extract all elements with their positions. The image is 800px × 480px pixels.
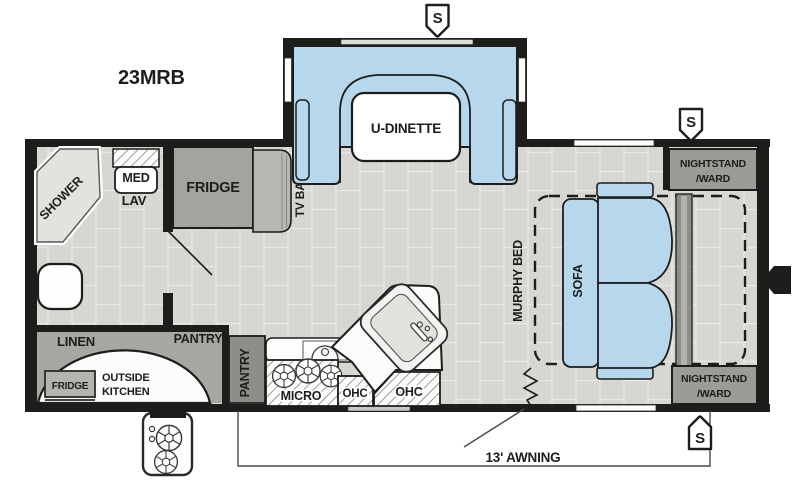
window-slideout-left: [285, 58, 292, 102]
outside-kitchen-label-1: OUTSIDE: [102, 372, 150, 384]
murphy-bed-platform-detail: [681, 196, 687, 370]
micro-label: MICRO: [281, 389, 322, 403]
speaker-badge-top: S: [427, 5, 449, 37]
window-slideout-right: [519, 58, 526, 102]
window-top: [574, 140, 654, 146]
nightstand-top-line2: /WARD: [696, 173, 731, 185]
outside-griddle: [143, 410, 192, 475]
stove-burner-2: [296, 359, 320, 383]
speaker-badge-right-bottom: S: [689, 417, 711, 450]
awning-label: 13' AWNING: [486, 450, 561, 465]
outside-fridge-label: FRIDGE: [52, 381, 89, 392]
window-bottom-bed: [576, 405, 656, 411]
floorplan-drawing: 23MRB SHOWER MED LAV: [0, 0, 800, 480]
lav-label: LAV: [122, 193, 147, 208]
griddle-burner-1: [156, 425, 181, 450]
fridge-label: FRIDGE: [186, 180, 240, 196]
ohc-left-label: OHC: [343, 388, 368, 400]
med-label: MED: [122, 171, 149, 185]
outside-kitchen-label-2: KITCHEN: [102, 386, 150, 398]
griddle-burner-2: [155, 451, 178, 474]
model-title: 23MRB: [118, 67, 185, 89]
speaker-letter: S: [433, 10, 443, 27]
awning-pointer-line: [464, 409, 524, 447]
speaker-letter: S: [686, 114, 696, 131]
awning-span-line: [238, 411, 710, 466]
pantry-rear-label: PANTRY: [174, 332, 224, 346]
murphy-bed-label: MURPHY BED: [511, 240, 525, 322]
window-slideout-top: [341, 40, 473, 45]
rear-storage: LINEN PANTRY FRIDGE OUTSIDE KITCHEN: [37, 332, 223, 403]
toilet: [38, 264, 82, 309]
tv-base-cabinet: [253, 150, 291, 232]
stove-burner-1: [273, 365, 296, 388]
floorplan-page: 23MRB SHOWER MED LAV: [0, 0, 800, 480]
speaker-badge-right-top: S: [680, 109, 702, 141]
sofa-label: SOFA: [571, 264, 585, 297]
speaker-letter: S: [695, 430, 705, 447]
sofa-seat-1: [598, 198, 672, 283]
linen-label: LINEN: [57, 334, 95, 349]
nightstand-top-line1: NIGHTSTAND: [680, 158, 747, 170]
ohc-right-label: OHC: [395, 385, 422, 399]
nightstand-bottom-line2: /WARD: [697, 388, 732, 400]
pantry-kitchen-label: PANTRY: [238, 348, 252, 398]
nightstand-ward-bottom: NIGHTSTAND /WARD: [672, 366, 757, 404]
sofa-seat-2: [598, 283, 672, 368]
hookup-letter: H: [774, 273, 785, 290]
medicine-cabinet: [113, 149, 159, 167]
nightstand-bottom-line1: NIGHTSTAND: [681, 373, 748, 385]
u-dinette-label: U-DINETTE: [371, 121, 441, 136]
sofa-top-cushion: [597, 183, 653, 197]
nightstand-ward-top: NIGHTSTAND /WARD: [669, 149, 757, 190]
